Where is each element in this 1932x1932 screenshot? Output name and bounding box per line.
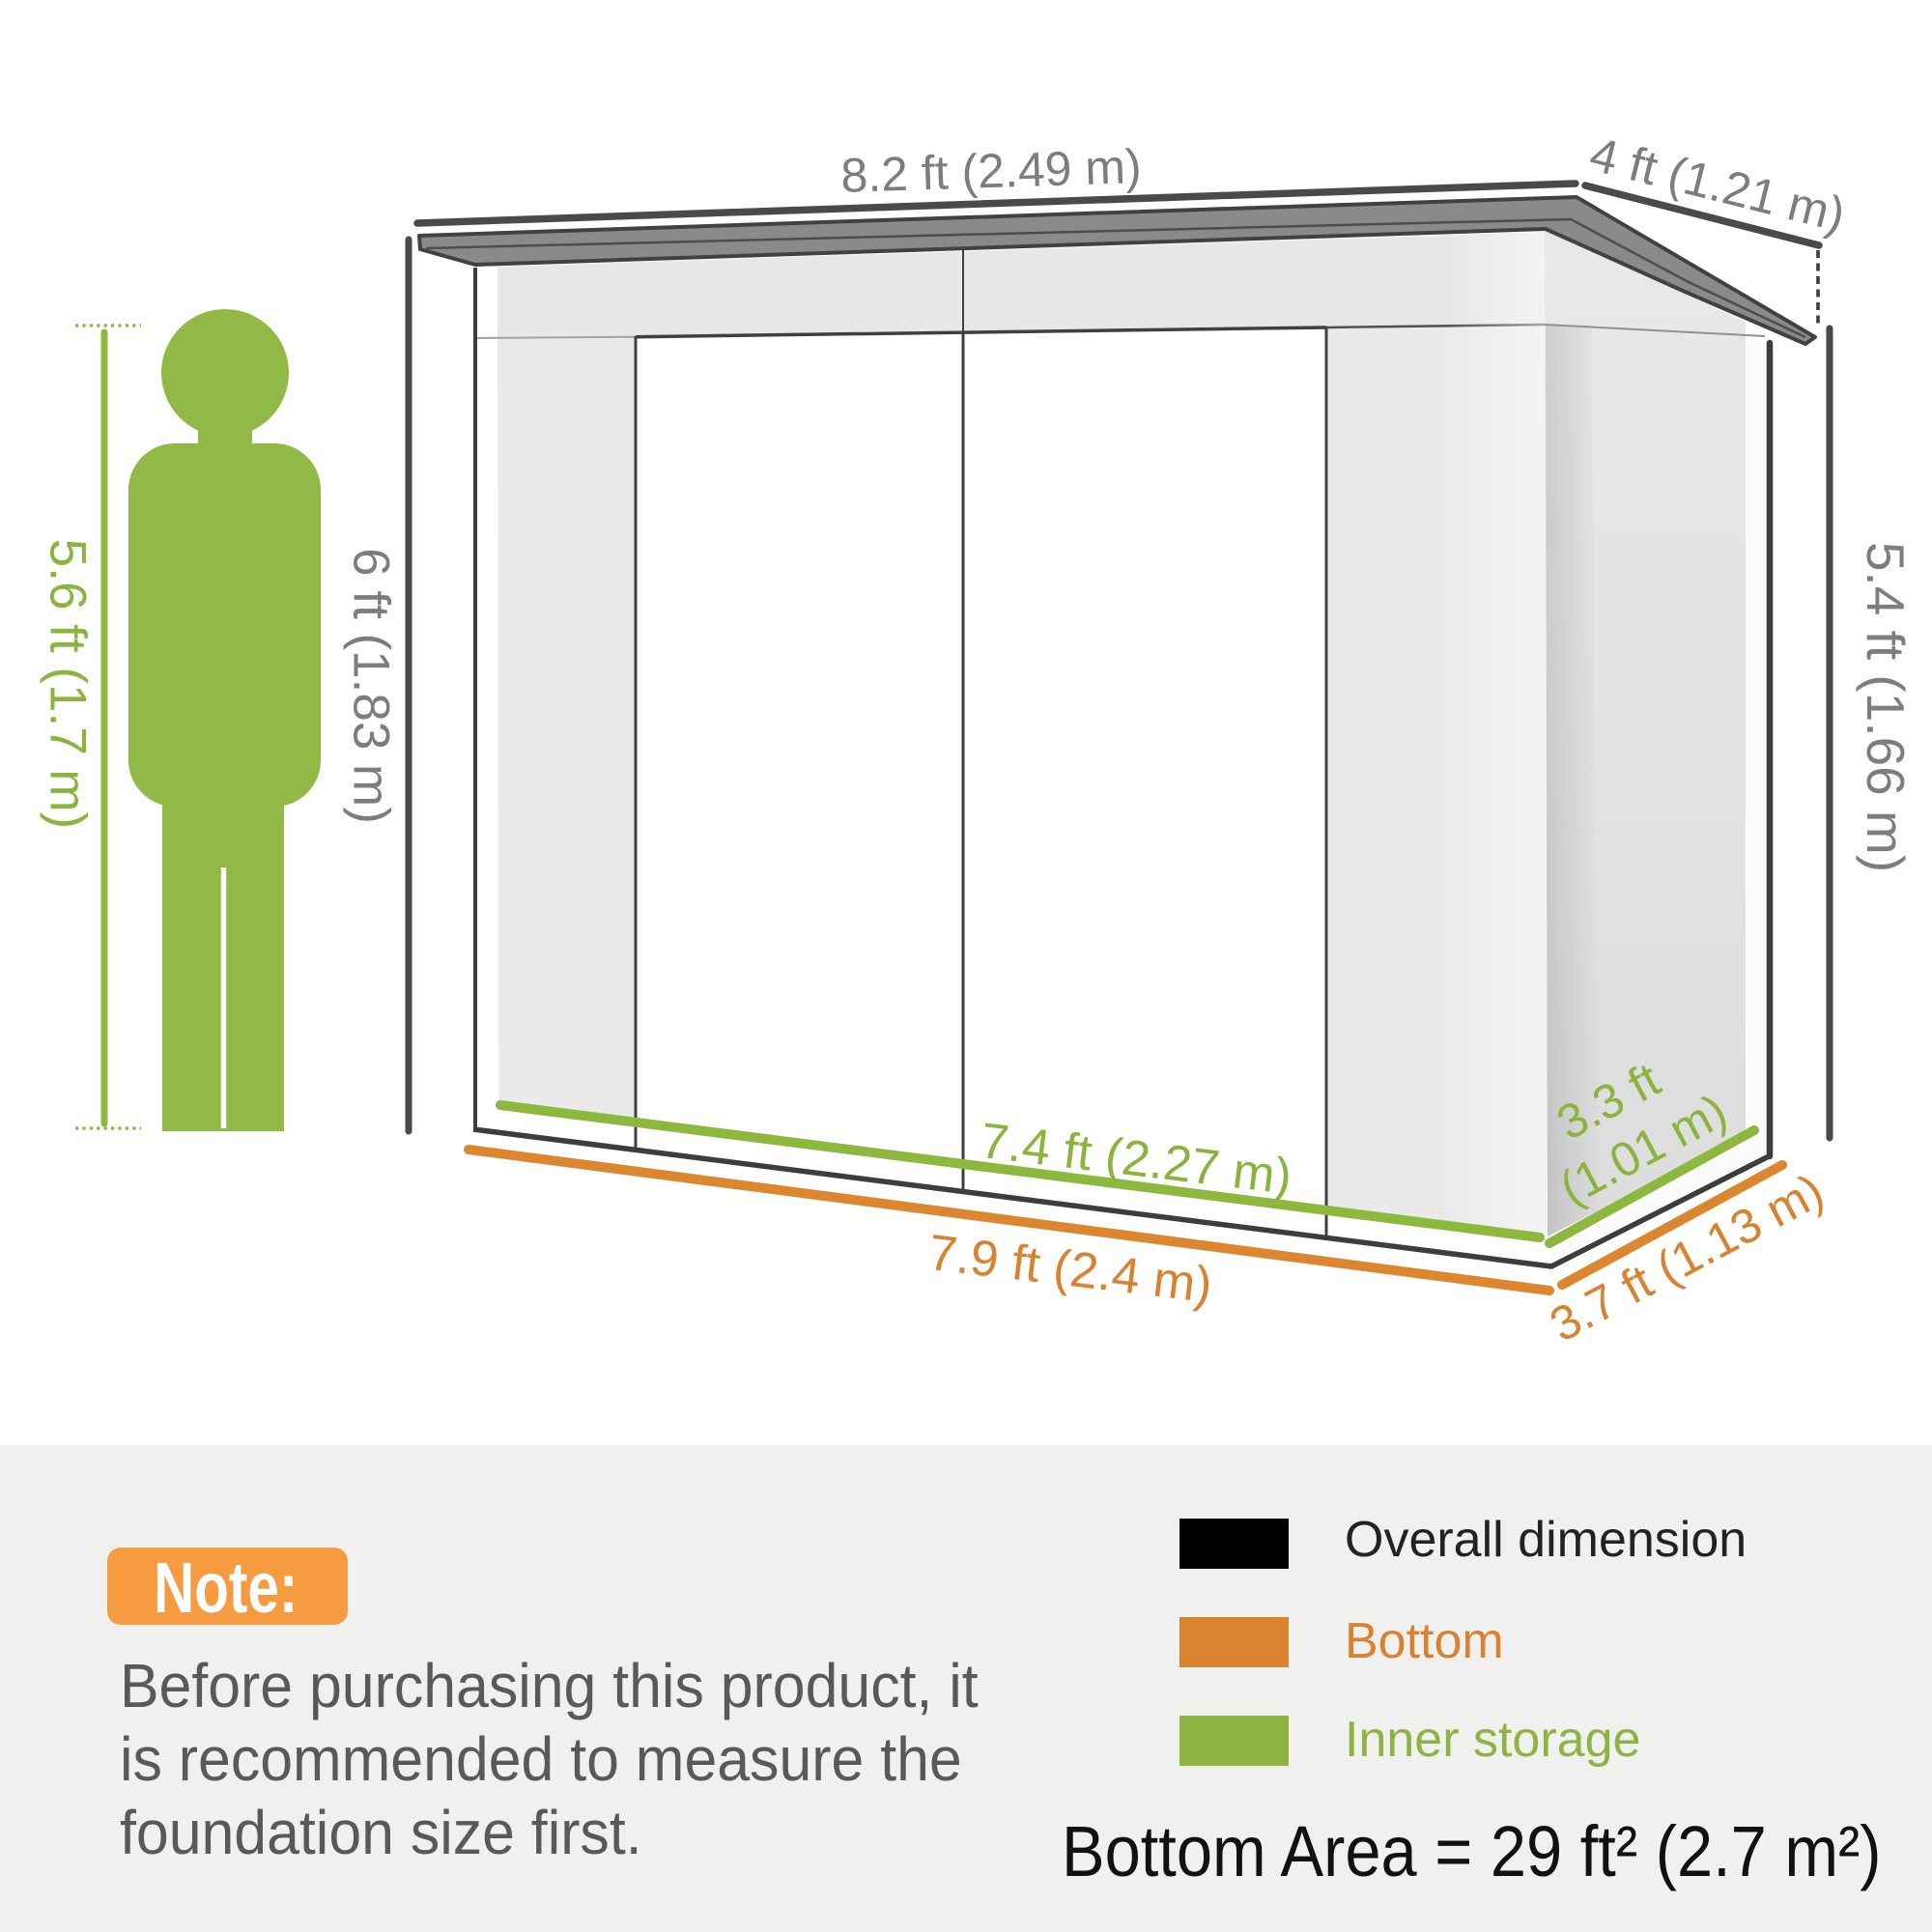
svg-text:5.4 ft (1.66 m): 5.4 ft (1.66 m)	[1856, 542, 1916, 872]
svg-text:foundation size first.: foundation size first.	[120, 1799, 642, 1868]
svg-text:Overall dimension: Overall dimension	[1345, 1512, 1747, 1568]
svg-text:Before purchasing this product: Before purchasing this product, it	[120, 1652, 979, 1721]
svg-text:Note:: Note:	[154, 1549, 298, 1629]
svg-text:Inner storage: Inner storage	[1345, 1712, 1640, 1768]
svg-text:Bottom Area = 29 ft² (2.7 m²): Bottom Area = 29 ft² (2.7 m²)	[1062, 1811, 1882, 1891]
svg-text:5.6 ft (1.7 m): 5.6 ft (1.7 m)	[40, 539, 97, 829]
svg-text:6 ft (1.83 m): 6 ft (1.83 m)	[343, 548, 400, 824]
svg-text:is recommended to measure the: is recommended to measure the	[120, 1725, 962, 1795]
svg-text:8.2 ft (2.49 m): 8.2 ft (2.49 m)	[840, 139, 1143, 203]
svg-text:Bottom: Bottom	[1345, 1613, 1504, 1669]
